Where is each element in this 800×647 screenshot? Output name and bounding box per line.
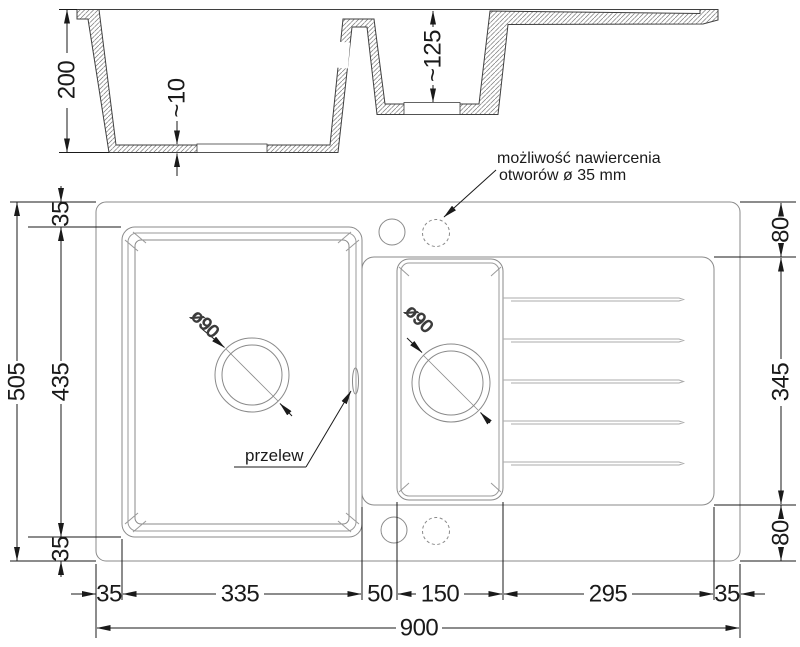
dim-depth-200: 200 bbox=[54, 61, 81, 100]
drain-dia-main: ø90 bbox=[187, 306, 223, 342]
drainboard bbox=[503, 298, 684, 465]
drill-note-line1: możliwość nawiercenia bbox=[497, 150, 661, 167]
small-basin bbox=[397, 259, 503, 500]
drainboard-groove bbox=[503, 380, 684, 383]
dim-right-bottom-80: 80 bbox=[768, 520, 795, 546]
dim-drainer-width-295: 295 bbox=[589, 581, 628, 608]
dim-basin-width-335: 335 bbox=[221, 581, 260, 608]
main-basin-corner-chamfers bbox=[125, 232, 359, 532]
dim-floor-10: ~10 bbox=[164, 78, 191, 117]
dim-rim-top-35: 35 bbox=[48, 201, 75, 227]
section-small-drain-recess bbox=[404, 103, 460, 115]
section-overflow-gap bbox=[334, 41, 350, 68]
section-main-drain-recess bbox=[197, 144, 267, 153]
drill-hole-dashed-top bbox=[423, 220, 450, 247]
dim-left-margin-35: 35 bbox=[96, 581, 122, 608]
dim-gap-50: 50 bbox=[367, 581, 393, 608]
dim-small-depth-125: ~125 bbox=[420, 30, 447, 82]
dim-total-900: 900 bbox=[400, 615, 439, 642]
annotations: możliwość nawiercenia otworów ø 35 mm pr… bbox=[234, 150, 661, 467]
dim-rim-bottom-35: 35 bbox=[48, 536, 75, 562]
drain-callouts: ø90 ø90 bbox=[187, 301, 490, 423]
dim-right-top-80: 80 bbox=[768, 217, 795, 243]
dim-basin-height-435: 435 bbox=[48, 363, 75, 402]
drainboard-groove bbox=[503, 462, 684, 465]
drainboard-groove bbox=[503, 421, 684, 424]
plan-view bbox=[96, 202, 740, 561]
drill-note-leader bbox=[444, 170, 496, 217]
drawing-canvas: 200 ~10 ~125 bbox=[0, 0, 800, 647]
drill-hole-dashed-bottom bbox=[423, 518, 450, 545]
dim-drainer-345: 345 bbox=[768, 363, 795, 402]
faucet-hole-top bbox=[379, 219, 405, 245]
dim-height-505: 505 bbox=[4, 363, 31, 402]
drainboard-groove bbox=[503, 298, 684, 301]
dim-small-width-150: 150 bbox=[421, 581, 460, 608]
overflow-label: przelew bbox=[245, 446, 304, 465]
drainboard-groove bbox=[503, 339, 684, 342]
drill-note-line2: otworów ø 35 mm bbox=[499, 167, 626, 184]
dim-right-margin-35: 35 bbox=[714, 581, 740, 608]
sink-technical-drawing: 200 ~10 ~125 bbox=[0, 0, 800, 647]
main-basin bbox=[122, 227, 362, 537]
overflow-leader bbox=[306, 391, 351, 467]
drain-dia-small: ø90 bbox=[401, 301, 437, 337]
faucet-hole-bottom bbox=[381, 517, 407, 543]
